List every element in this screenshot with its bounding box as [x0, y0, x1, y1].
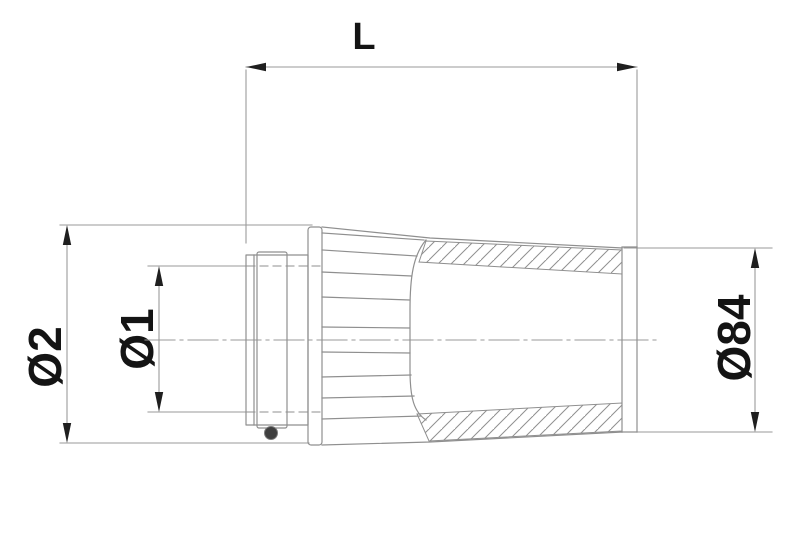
dim-length-label: L — [352, 16, 375, 58]
dim-inlet-label: Ø1 — [111, 308, 163, 369]
dimension-length: L — [246, 16, 637, 246]
inner-dome-curve — [410, 240, 426, 420]
drawing-svg: L Ø2 Ø1 Ø84 — [0, 0, 800, 539]
pleat-line — [322, 352, 410, 353]
filter-body — [246, 227, 637, 445]
rubber-bottom-section — [417, 403, 622, 441]
filter-pleats — [322, 233, 424, 419]
pleat-line — [322, 250, 417, 256]
hatch-bottom — [417, 403, 622, 441]
pleat-line — [322, 297, 409, 300]
arrow-down-icon — [155, 392, 163, 412]
dimension-inlet-diameter: Ø1 — [111, 266, 247, 412]
technical-drawing: L Ø2 Ø1 Ø84 — [0, 0, 800, 539]
pleat-line — [322, 272, 411, 276]
arrow-up-icon — [155, 266, 163, 286]
dim-end-label: Ø84 — [708, 294, 760, 381]
arrow-up-icon — [63, 225, 71, 245]
pleat-line — [322, 375, 411, 377]
pleat-line — [322, 396, 414, 398]
dimension-flange-diameter: Ø2 — [19, 225, 312, 443]
arrow-left-icon — [246, 63, 266, 71]
pleat-line — [322, 233, 424, 240]
clamp-screw — [265, 427, 278, 440]
clamp-band — [257, 252, 287, 440]
arrow-down-icon — [63, 423, 71, 443]
arrow-up-icon — [751, 248, 759, 268]
pleat-line — [322, 327, 409, 328]
arrow-right-icon — [617, 63, 637, 71]
pleat-line — [322, 416, 421, 419]
arrow-down-icon — [751, 412, 759, 432]
dim-flange-label: Ø2 — [19, 326, 71, 387]
